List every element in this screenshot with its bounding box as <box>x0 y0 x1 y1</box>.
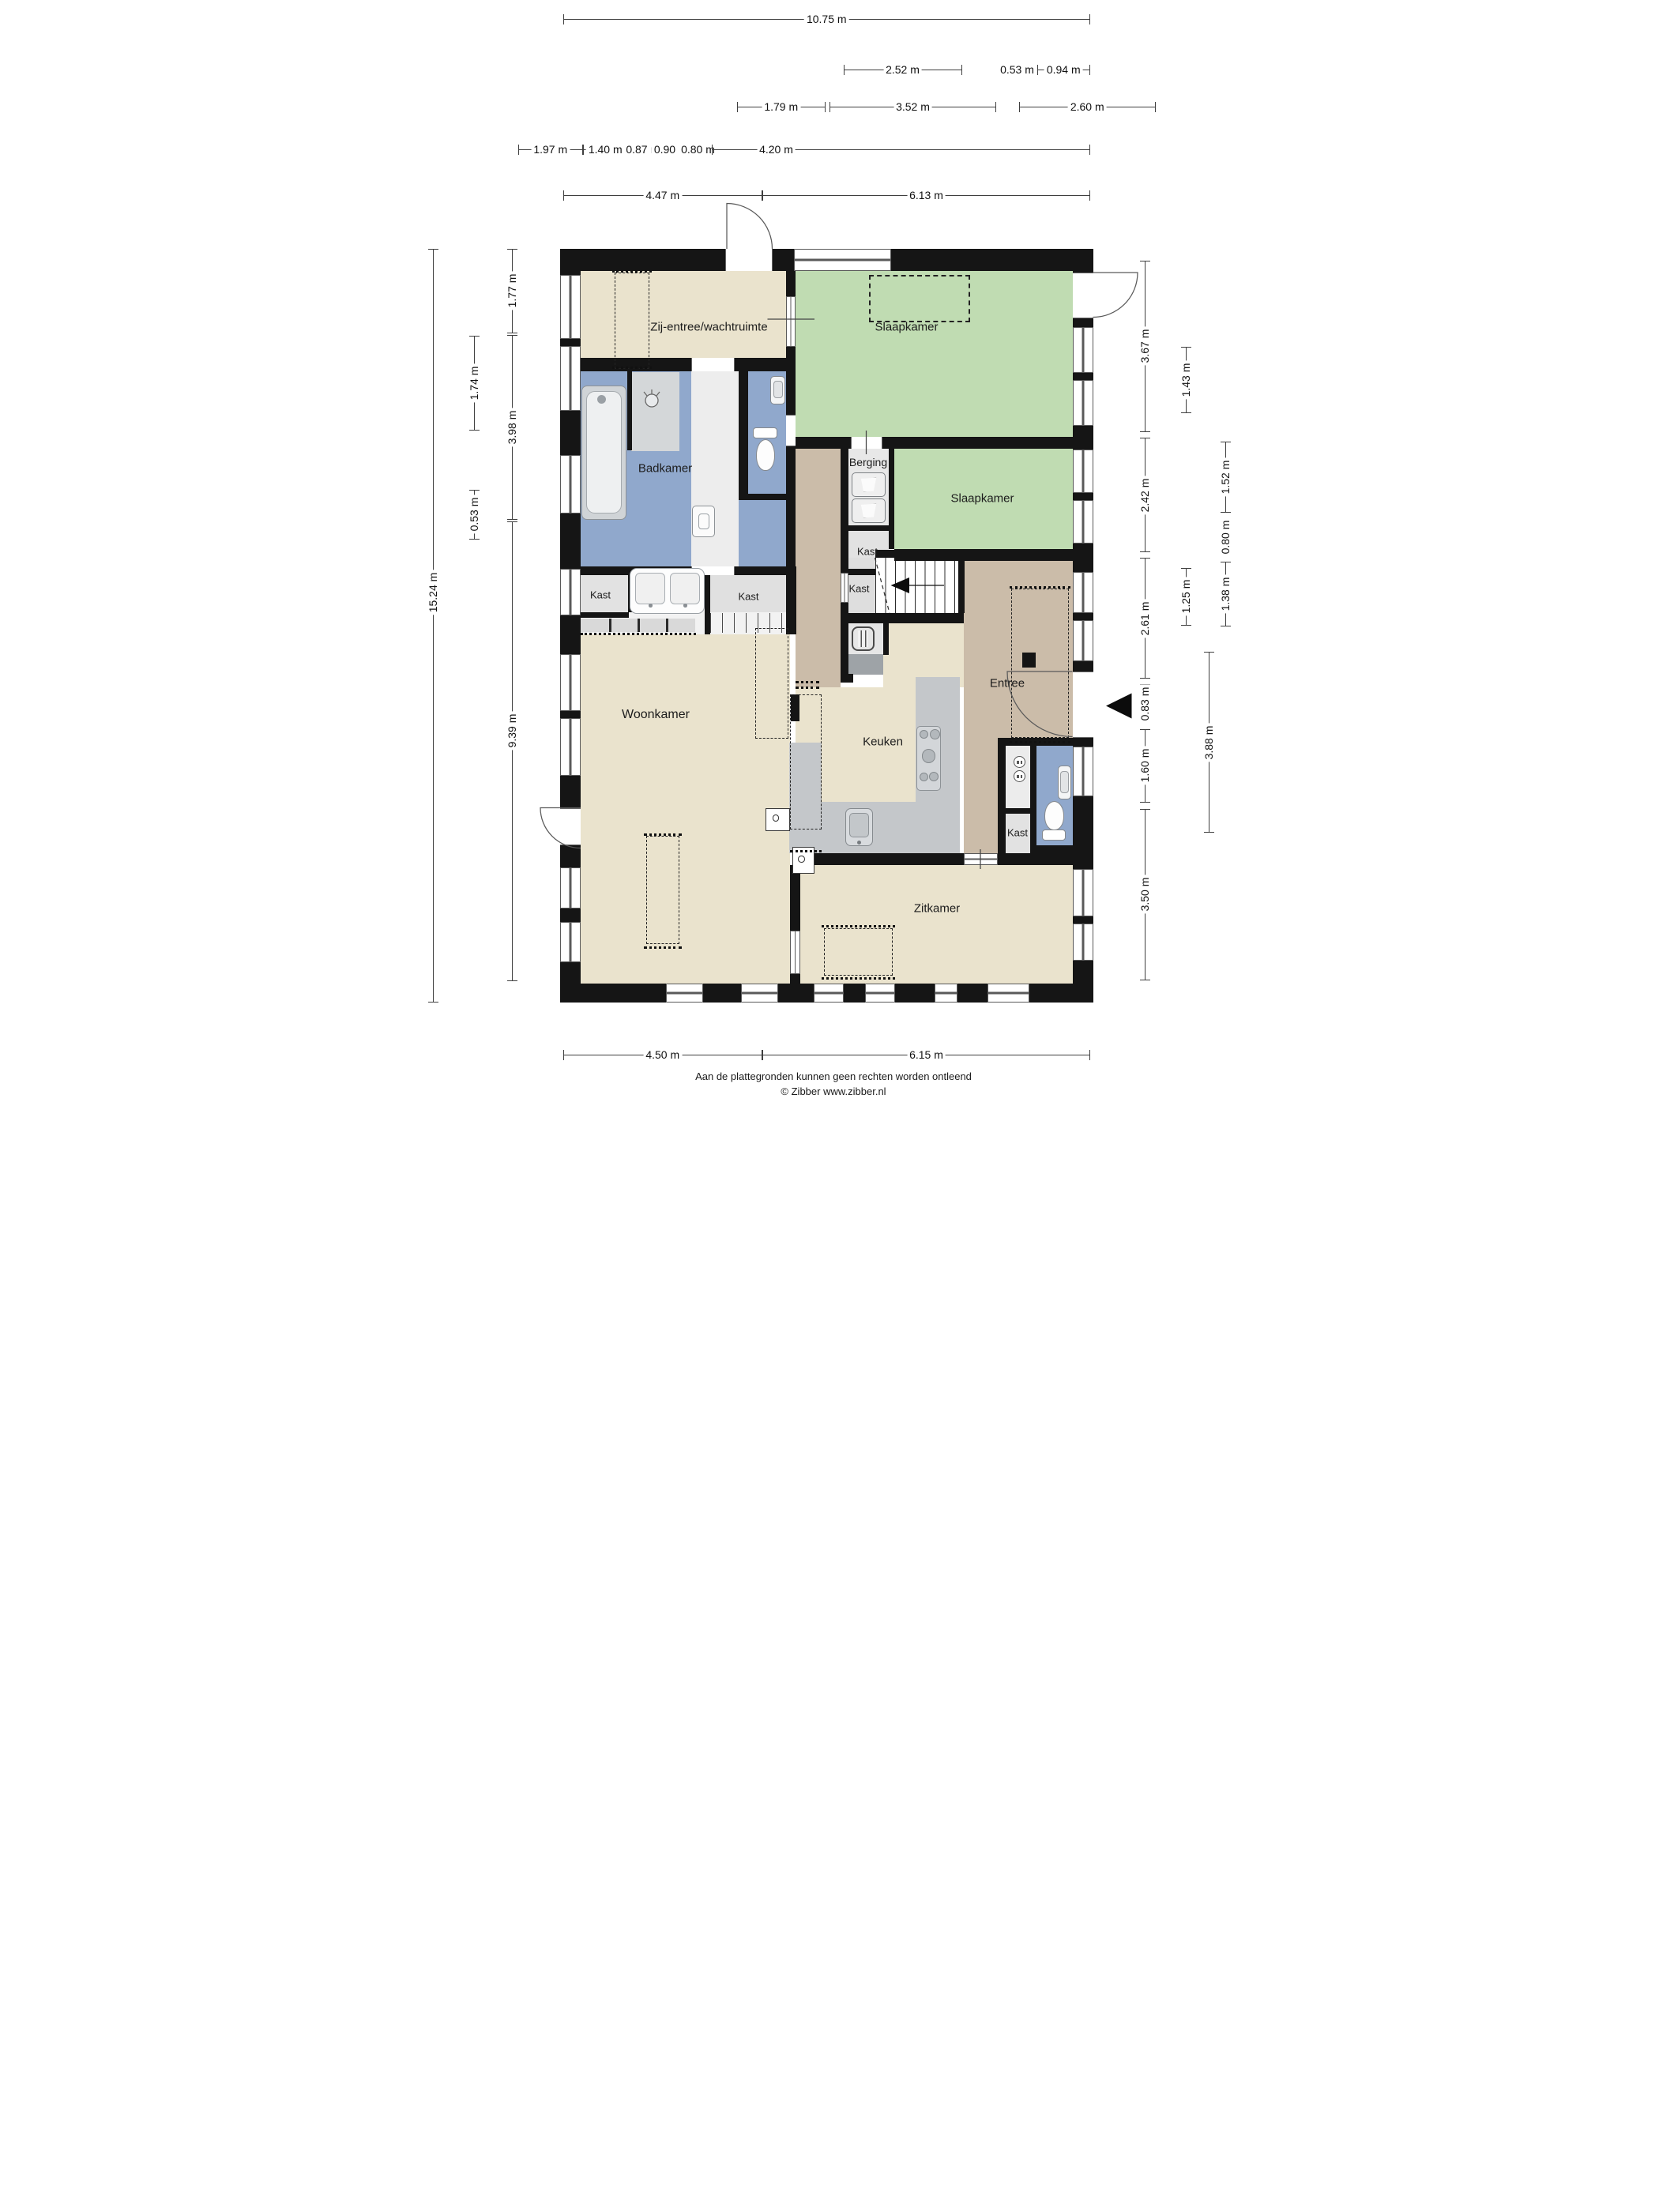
dimension-tick <box>1089 14 1090 24</box>
roof-window-marking <box>755 628 788 739</box>
dimension-label: 2.60 m <box>1068 100 1107 113</box>
dimension-tick <box>428 1002 438 1003</box>
washbasin-bowl <box>670 573 700 604</box>
window <box>1073 327 1093 373</box>
wall <box>705 575 710 634</box>
roof-window-marking <box>615 273 649 369</box>
dotted-marking <box>790 850 822 853</box>
door-opening <box>1073 671 1093 738</box>
window <box>790 931 800 974</box>
dimension-tick <box>1204 652 1214 653</box>
dimension-label: 15.24 m <box>427 570 439 615</box>
room-label-entree: Entree <box>990 677 1025 690</box>
dotted-marking <box>822 977 895 980</box>
door-opening <box>786 415 796 446</box>
dimension-tick <box>1019 102 1020 112</box>
dimension-label: 3.67 m <box>1138 327 1151 366</box>
dimension-tick <box>507 519 517 520</box>
dimension-label: 3.98 m <box>506 408 518 446</box>
dimension-tick <box>712 145 713 155</box>
wall <box>627 371 632 450</box>
dotted-marking <box>822 925 895 928</box>
dimension-label: 4.50 m <box>643 1048 682 1061</box>
dimension-tick <box>1181 347 1191 348</box>
sink-bowl <box>773 381 783 398</box>
toilet-bowl <box>1044 801 1064 830</box>
kitchen-sink-bowl <box>849 813 869 837</box>
wall <box>889 449 894 550</box>
entrance-arrow <box>1106 694 1132 719</box>
dimension-label: 1.74 m <box>468 364 480 403</box>
window <box>814 984 844 1003</box>
dimension-tick <box>1037 65 1038 75</box>
room-label-zitkamer: Zitkamer <box>914 902 960 916</box>
door-opening <box>691 358 735 372</box>
dimension-tick <box>995 102 996 112</box>
cubby-divider <box>609 619 611 632</box>
dimension-label: 4.20 m <box>757 143 796 156</box>
dimension-tick <box>1089 1050 1090 1060</box>
wall <box>883 623 889 655</box>
dimension-label: 1.40 m <box>586 143 625 156</box>
window <box>1073 450 1093 493</box>
dimension-tick <box>1140 431 1150 432</box>
wall <box>841 613 964 623</box>
dimension-tick <box>1089 65 1090 75</box>
stove-box-ring <box>798 856 805 863</box>
wall <box>848 525 889 531</box>
roof-window-marking <box>869 275 970 322</box>
wall <box>786 437 1090 449</box>
dimension-tick <box>469 539 480 540</box>
kitchen-sink-tap <box>857 841 861 845</box>
bathtub-inner <box>586 391 622 513</box>
dimension-tick <box>563 190 564 201</box>
wall <box>841 674 853 683</box>
room-label-kast-1: Kast <box>590 589 611 600</box>
dotted-marking <box>1010 586 1071 589</box>
door-arc <box>727 204 773 250</box>
dimension-label: 6.15 m <box>907 1048 946 1061</box>
dimension-label: 3.50 m <box>1138 875 1151 914</box>
dimension-label: 1.77 m <box>506 272 518 310</box>
dimension-label: 2.52 m <box>883 63 922 76</box>
dimension-tick <box>1181 625 1191 626</box>
window <box>1073 500 1093 544</box>
door-opening <box>851 437 882 449</box>
dotted-marking <box>796 687 819 690</box>
dimension-tick <box>1221 512 1231 513</box>
shower-tray <box>631 372 679 451</box>
bathtub-tap <box>597 395 606 404</box>
dotted-marking <box>796 681 819 684</box>
room-label-kast-2: Kast <box>738 591 758 603</box>
window <box>560 922 581 962</box>
dimension-tick <box>1155 102 1156 112</box>
window <box>560 654 581 712</box>
dimension-tick <box>1140 558 1150 559</box>
window <box>786 296 796 347</box>
dimension-label: 6.13 m <box>907 189 946 201</box>
dimension-tick <box>1140 261 1150 261</box>
wall <box>1030 746 1036 853</box>
window <box>865 984 895 1003</box>
floor-zij-entree <box>581 271 786 358</box>
wall <box>581 612 629 618</box>
dimension-tick <box>1140 802 1150 803</box>
floor-plan: Zij-entree/wachtruimteSlaapkamerSlaapkam… <box>415 0 1244 1106</box>
room-label-slaapkamer-1: Slaapkamer <box>875 321 938 334</box>
floor-entree-corridor <box>964 746 998 853</box>
dimension-tick <box>1181 412 1191 413</box>
shower-drain <box>698 513 709 529</box>
roof-window-marking <box>790 694 822 830</box>
dotted-marking <box>644 833 682 837</box>
toilet-icon <box>1042 829 1066 841</box>
footer-disclaimer: Aan de plattegronden kunnen geen rechten… <box>695 1070 972 1082</box>
window <box>794 249 891 271</box>
dimension-label: 0.94 m <box>1044 63 1083 76</box>
door-arc <box>1093 273 1138 318</box>
dimension-label: 0.83 m <box>1138 684 1151 723</box>
dimension-tick <box>1181 568 1191 569</box>
burner-icon <box>920 773 928 781</box>
wall <box>786 446 796 566</box>
dimension-tick <box>518 145 519 155</box>
roof-window-marking <box>824 928 893 976</box>
dimension-tick <box>563 1050 564 1060</box>
dotted-marking <box>644 946 682 950</box>
dimension-tick <box>1221 562 1231 562</box>
dimension-line <box>512 521 513 981</box>
window <box>841 573 848 603</box>
window <box>964 853 998 865</box>
dimension-label: 4.47 m <box>643 189 682 201</box>
dimension-tick <box>507 335 517 336</box>
door-opening <box>1073 273 1093 318</box>
window <box>741 984 779 1003</box>
dimension-label: 9.39 m <box>506 712 518 750</box>
window <box>935 984 957 1003</box>
burner-icon <box>922 749 936 763</box>
window <box>1073 924 1093 961</box>
dimension-tick <box>1140 551 1150 552</box>
outlet-dot <box>1017 775 1019 778</box>
dimension-tick <box>428 249 438 250</box>
washbasin-tap <box>649 604 653 608</box>
wall <box>735 566 786 575</box>
dimension-label: 1.25 m <box>1179 577 1192 616</box>
room-label-kast-5: Kast <box>1007 827 1028 839</box>
window <box>560 569 581 615</box>
cubby-divider <box>638 619 640 632</box>
dimension-tick <box>825 102 826 112</box>
dotted-marking <box>612 367 652 370</box>
dimension-tick <box>1140 980 1150 980</box>
dimension-label: 1.79 m <box>762 100 800 113</box>
washbasin-tap <box>683 604 687 608</box>
wall <box>790 974 800 1003</box>
dimension-label: 10.75 m <box>804 13 849 25</box>
wall <box>894 549 1090 561</box>
wall <box>841 449 848 574</box>
stairs-treads <box>875 558 965 613</box>
outlet-dot <box>1021 761 1023 764</box>
roof-window-marking <box>1011 589 1069 738</box>
dimension-label: 1.60 m <box>1138 747 1151 785</box>
room-label-kast-3: Kast <box>857 545 878 557</box>
dimension-tick <box>829 102 830 112</box>
floor-hallway <box>796 449 841 688</box>
dimension-label: 2.61 m <box>1138 599 1151 638</box>
dimension-tick <box>469 490 480 491</box>
dimension-tick <box>961 65 962 75</box>
dimension-label: 1.52 m <box>1219 457 1232 496</box>
dimension-label: 2.42 m <box>1138 476 1151 514</box>
room-label-woonkamer: Woonkamer <box>622 708 690 722</box>
dimension-tick <box>507 333 517 333</box>
footer-copyright: © Zibber www.zibber.nl <box>781 1085 886 1097</box>
room-label-slaapkamer-2: Slaapkamer <box>950 492 1014 506</box>
window <box>1073 620 1093 661</box>
dotted-marking <box>581 633 696 636</box>
dimension-line <box>433 249 434 1003</box>
window <box>560 867 581 909</box>
dimension-tick <box>737 102 738 112</box>
electric-outlet-icon <box>1014 770 1025 782</box>
cubby-divider <box>666 619 668 632</box>
room-label-kast-4: Kast <box>848 583 869 595</box>
outlet-dot <box>1017 761 1019 764</box>
electric-outlet-icon <box>1014 756 1025 768</box>
stove-box-ring <box>773 814 780 822</box>
window <box>666 984 703 1003</box>
counter-dark <box>848 654 883 675</box>
wall <box>790 865 800 931</box>
room-label-berging: Berging <box>849 456 887 468</box>
room-label-badkamer: Badkamer <box>638 462 692 476</box>
dimension-tick <box>1140 438 1150 438</box>
dimension-tick <box>762 1050 763 1060</box>
wall <box>1036 845 1073 853</box>
dimension-tick <box>1089 190 1090 201</box>
wall <box>786 271 796 297</box>
dimension-label: 1.38 m <box>1219 574 1232 613</box>
washbasin-bowl <box>635 573 665 604</box>
dimension-label: 0.53 m <box>468 495 480 534</box>
wall <box>998 853 1073 865</box>
dotted-marking <box>612 270 652 273</box>
dimension-label: 0.80 m <box>1219 517 1232 556</box>
dimension-tick <box>1140 678 1150 679</box>
wall <box>581 358 786 372</box>
wall <box>739 371 748 500</box>
window <box>1073 869 1093 916</box>
window <box>560 275 581 340</box>
dimension-tick <box>507 249 517 250</box>
window <box>560 718 581 776</box>
dimension-tick <box>1089 145 1090 155</box>
window <box>1073 380 1093 426</box>
wall <box>786 566 796 634</box>
dimension-tick <box>1204 832 1214 833</box>
dimension-label: 1.43 m <box>1179 361 1192 400</box>
dimension-tick <box>507 521 517 522</box>
wall <box>800 853 965 865</box>
door-opening <box>725 249 773 271</box>
dimension-label: 3.88 m <box>1202 723 1215 762</box>
dimension-tick <box>469 336 480 337</box>
dimension-tick <box>563 14 564 24</box>
toilet-bowl <box>756 439 775 471</box>
burner-icon <box>930 729 940 739</box>
window <box>987 984 1029 1003</box>
heater-icon <box>852 626 875 651</box>
dimension-tick <box>1221 626 1231 626</box>
wall <box>958 558 965 613</box>
wall <box>1006 808 1031 814</box>
dimension-tick <box>1140 809 1150 810</box>
wall <box>998 746 1006 853</box>
dimension-tick <box>762 190 763 201</box>
window <box>560 455 581 513</box>
toilet-icon <box>753 427 777 438</box>
sink-bowl <box>1060 771 1069 793</box>
dimension-tick <box>1140 729 1150 730</box>
outlet-dot <box>1021 775 1023 778</box>
dimension-label: 0.53 m <box>998 63 1036 76</box>
burner-icon <box>929 772 939 782</box>
burner-icon <box>920 730 928 739</box>
room-label-zij-entree: Zij-entree/wachtruimte <box>650 320 767 333</box>
wall <box>748 494 787 500</box>
dimension-tick <box>507 980 517 981</box>
window <box>1073 572 1093 613</box>
dimension-tick <box>469 430 480 431</box>
room-label-keuken: Keuken <box>863 735 903 749</box>
dimension-tick <box>1221 442 1231 442</box>
window <box>1073 747 1093 796</box>
dimension-label: 1.97 m <box>531 143 570 156</box>
roof-window-marking <box>646 836 680 945</box>
dimension-tick <box>583 145 584 155</box>
window <box>560 346 581 411</box>
dotted-marking <box>1010 741 1071 744</box>
dimension-tick <box>844 65 845 75</box>
door-opening <box>560 808 581 846</box>
wall <box>786 347 796 415</box>
dimension-label: 3.52 m <box>893 100 932 113</box>
